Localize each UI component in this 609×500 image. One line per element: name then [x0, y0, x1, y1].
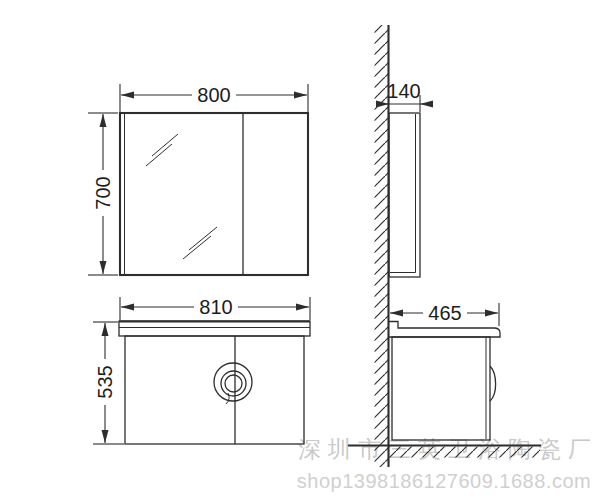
vanity-depth-label: 465: [428, 302, 461, 324]
technical-drawing: 深圳市三英卫浴陶瓷厂 800: [0, 0, 609, 500]
mirror-cabinet-front-view: 800 700: [88, 84, 308, 275]
ring-handle-icon: [214, 363, 252, 404]
arrow-down-icon: [102, 430, 109, 443]
arrow-left-icon: [420, 101, 433, 108]
mirror-width-label: 800: [197, 84, 230, 106]
mirror-width-dimension: 800: [120, 84, 308, 112]
vanity-side-view: 465: [388, 302, 500, 440]
mirror-depth-label: 140: [387, 80, 420, 102]
arrow-right-icon: [485, 310, 498, 317]
vanity-height-dimension: 535: [93, 322, 124, 444]
mirror-height-label: 700: [92, 176, 114, 209]
mirror-cabinet-outline: [120, 113, 308, 275]
wall-hatching: [375, 25, 389, 467]
vanity-body-outline: [125, 336, 304, 444]
vanity-front-view: 810 535: [93, 296, 310, 444]
vanity-depth-dimension: 465: [390, 302, 499, 326]
mirror-height-dimension: 700: [88, 113, 118, 275]
mirror-glass-marks: [146, 134, 217, 259]
watermark-shop-url: shop1398186127609.1688.com: [297, 470, 591, 492]
arrow-left-icon: [121, 92, 134, 99]
arrow-left-icon: [390, 310, 403, 317]
arrow-right-icon: [294, 92, 307, 99]
vanity-width-label: 810: [199, 296, 232, 318]
vanity-side-body-outline: [392, 337, 490, 440]
floor-hatching: [389, 447, 540, 458]
vanity-countertop: [119, 321, 310, 336]
arrow-up-icon: [102, 323, 109, 336]
vanity-height-label: 535: [94, 365, 116, 398]
arrow-right-icon: [296, 304, 309, 311]
arrow-up-icon: [100, 114, 107, 127]
vanity-width-dimension: 810: [120, 296, 310, 320]
arrow-left-icon: [121, 304, 134, 311]
arrow-down-icon: [100, 261, 107, 274]
vanity-side-handle: [490, 366, 496, 401]
drawing-canvas: 深圳市三英卫浴陶瓷厂 800: [0, 0, 609, 500]
